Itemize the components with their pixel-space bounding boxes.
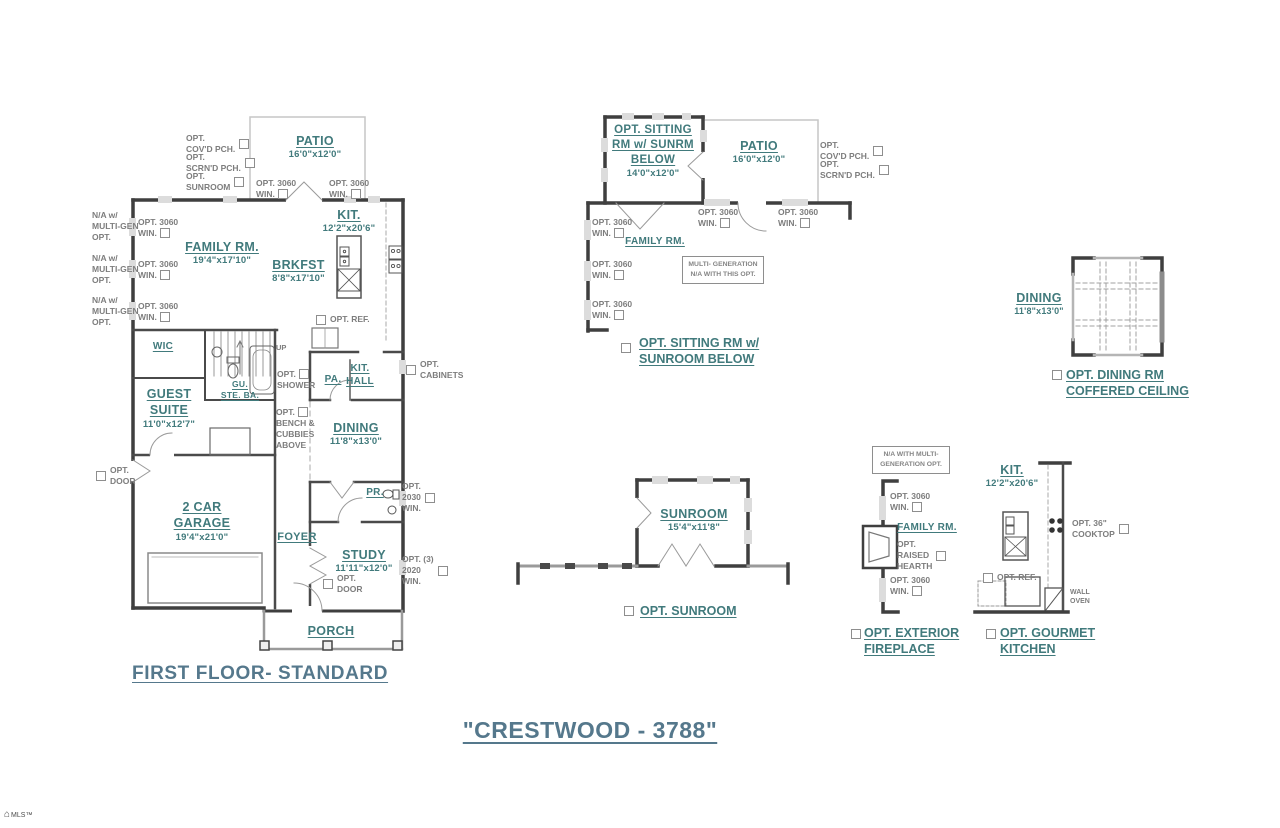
option-checkbox [912, 586, 922, 596]
option-checkbox [912, 502, 922, 512]
option-checkbox [160, 312, 170, 322]
room-label-dining-2: DINING 11'8"x13'0" [1006, 290, 1072, 318]
room-label-kit: KIT. 12'2"x20'6" [319, 207, 379, 236]
room-label-garage: 2 CAR GARAGE 19'4"x21'0" [160, 499, 244, 544]
room-label-porch: PORCH [301, 623, 361, 639]
caption-opt-dining-coffered: OPT. DINING RM COFFERED CEILING [1066, 367, 1189, 400]
room-label-wic: WIC [143, 340, 183, 353]
room-label-dining: DINING 11'8"x13'0" [316, 420, 396, 449]
room-label-guest-suite: GUEST SUITE 11'0"x12'7" [134, 386, 204, 431]
caption-opt-exterior-fireplace: OPT. EXTERIOR FIREPLACE [864, 625, 959, 658]
label-opt-3060-win: OPT. 3060 WIN. [592, 299, 632, 321]
label-opt-3060-win: OPT. 3060 WIN. [778, 207, 818, 229]
label-opt-3060-win: OPT. 3060 WIN. [329, 178, 369, 200]
note-na-multigen: N/A WITH MULTI- GENERATION OPT. [872, 446, 950, 474]
room-label-opt-sitting: OPT. SITTING RM w/ SUNRM BELOW 14'0"x12'… [606, 123, 700, 180]
option-checkbox [323, 579, 333, 589]
floorplan-sheet: OPT.COV'D PCH. OPT.SCRN'D PCH. OPT.SUNRO… [0, 0, 1280, 828]
room-label-guest-bath: GU. STE. BA. [217, 379, 263, 401]
dining-plan-walls [1073, 258, 1162, 355]
label-opt-3060-win: OPT. 3060 WIN. [256, 178, 296, 200]
option-checkbox [720, 218, 730, 228]
option-checkbox [879, 165, 889, 175]
label-opt-cabinets: OPT.CABINETS [406, 359, 463, 381]
label-na-multigen: N/A w/MULTI-GENOPT. [92, 210, 139, 243]
option-checkbox [851, 629, 861, 639]
label-opt-ref: OPT. REF. [316, 314, 370, 325]
label-opt-ref-2: OPT. REF. [983, 572, 1037, 583]
label-opt-door-study: OPT.DOOR [323, 573, 363, 595]
label-opt-shower: OPT. SHOWER [277, 369, 315, 391]
option-checkbox [986, 629, 996, 639]
house-logo-icon: ⌂ [4, 810, 10, 820]
caption-opt-gourmet-kitchen: OPT. GOURMET KITCHEN [1000, 625, 1095, 658]
room-label-patio: PATIO 16'0"x12'0" [265, 133, 365, 162]
option-checkbox [621, 343, 631, 353]
label-opt-sunroom: OPT.SUNROOM [186, 171, 244, 193]
label-opt-bench-cubbies: OPT. BENCH & CUBBIES ABOVE [276, 407, 315, 451]
plan-title: "CRESTWOOD - 3788" [420, 717, 760, 744]
label-opt-2030-win: OPT.2030WIN. [402, 481, 435, 514]
option-checkbox [983, 573, 993, 583]
option-checkbox [278, 189, 288, 199]
option-checkbox [96, 471, 106, 481]
label-opt-2020-win: OPT. (3)2020WIN. [402, 554, 448, 587]
room-label-kit-hall: KIT. HALL [338, 362, 382, 388]
option-checkbox [160, 228, 170, 238]
option-checkbox [298, 407, 308, 417]
option-checkbox [438, 566, 448, 576]
label-opt-3060-win: OPT. 3060 WIN. [890, 491, 930, 513]
room-label-powder: PR. [360, 486, 390, 499]
label-na-multigen: N/A w/MULTI-GENOPT. [92, 295, 139, 328]
room-label-family-rm-3: FAMILY RM. [894, 521, 960, 534]
label-opt-3060-win: OPT. 3060 WIN. [592, 259, 632, 281]
room-label-sunroom: SUNROOM 15'4"x11'8" [649, 506, 739, 535]
note-multigen-na: MULTI- GENERATION N/A WITH THIS OPT. [682, 256, 764, 284]
option-checkbox [316, 315, 326, 325]
room-label-foyer: FOYER [272, 530, 322, 544]
room-label-study: STUDY 11'11"x12'0" [324, 547, 404, 576]
option-checkbox [614, 310, 624, 320]
label-na-multigen: N/A w/MULTI-GENOPT. [92, 253, 139, 286]
label-opt-door: OPT.DOOR [96, 465, 136, 487]
option-checkbox [160, 270, 170, 280]
room-label-brkfst: BRKFST 8'8"x17'10" [256, 257, 341, 286]
option-checkbox [239, 139, 249, 149]
room-label-patio-2: PATIO 16'0"x12'0" [724, 138, 794, 167]
room-label-family-rm-2: FAMILY RM. [615, 235, 695, 248]
label-opt-3060-win: OPT. 3060 WIN. [890, 575, 930, 597]
option-checkbox [614, 270, 624, 280]
option-checkbox [406, 365, 416, 375]
label-opt-raised-hearth: OPT.RAISEDHEARTH [897, 539, 946, 572]
label-opt-3060-win: OPT. 3060 WIN. [698, 207, 738, 229]
label-wall-oven: WALL OVEN [1070, 588, 1090, 606]
option-checkbox [245, 158, 255, 168]
option-checkbox [624, 606, 634, 616]
label-opt-3060-win: OPT. 3060 WIN. [138, 301, 178, 323]
option-checkbox [234, 177, 244, 187]
option-checkbox [351, 189, 361, 199]
label-up: UP [276, 343, 286, 353]
option-checkbox [1119, 524, 1129, 534]
floor-caption: FIRST FLOOR- STANDARD [132, 663, 388, 685]
label-opt-3060-win: OPT. 3060 WIN. [138, 217, 178, 239]
mls-watermark: ⌂ MLS™ [4, 810, 32, 820]
option-checkbox [299, 369, 309, 379]
option-checkbox [800, 218, 810, 228]
option-checkbox [425, 493, 435, 503]
option-checkbox [873, 146, 883, 156]
caption-opt-sunroom: OPT. SUNROOM [640, 603, 737, 619]
label-opt-36-cooktop: OPT. 36"COOKTOP [1072, 518, 1129, 540]
caption-opt-sitting-rm: OPT. SITTING RM w/ SUNROOM BELOW [639, 335, 759, 368]
room-label-kit-2: KIT. 12'2"x20'6" [982, 462, 1042, 491]
option-checkbox [936, 551, 946, 561]
label-opt-scrnd-pch: OPT.SCRN'D PCH. [820, 159, 889, 181]
option-checkbox [1052, 370, 1062, 380]
